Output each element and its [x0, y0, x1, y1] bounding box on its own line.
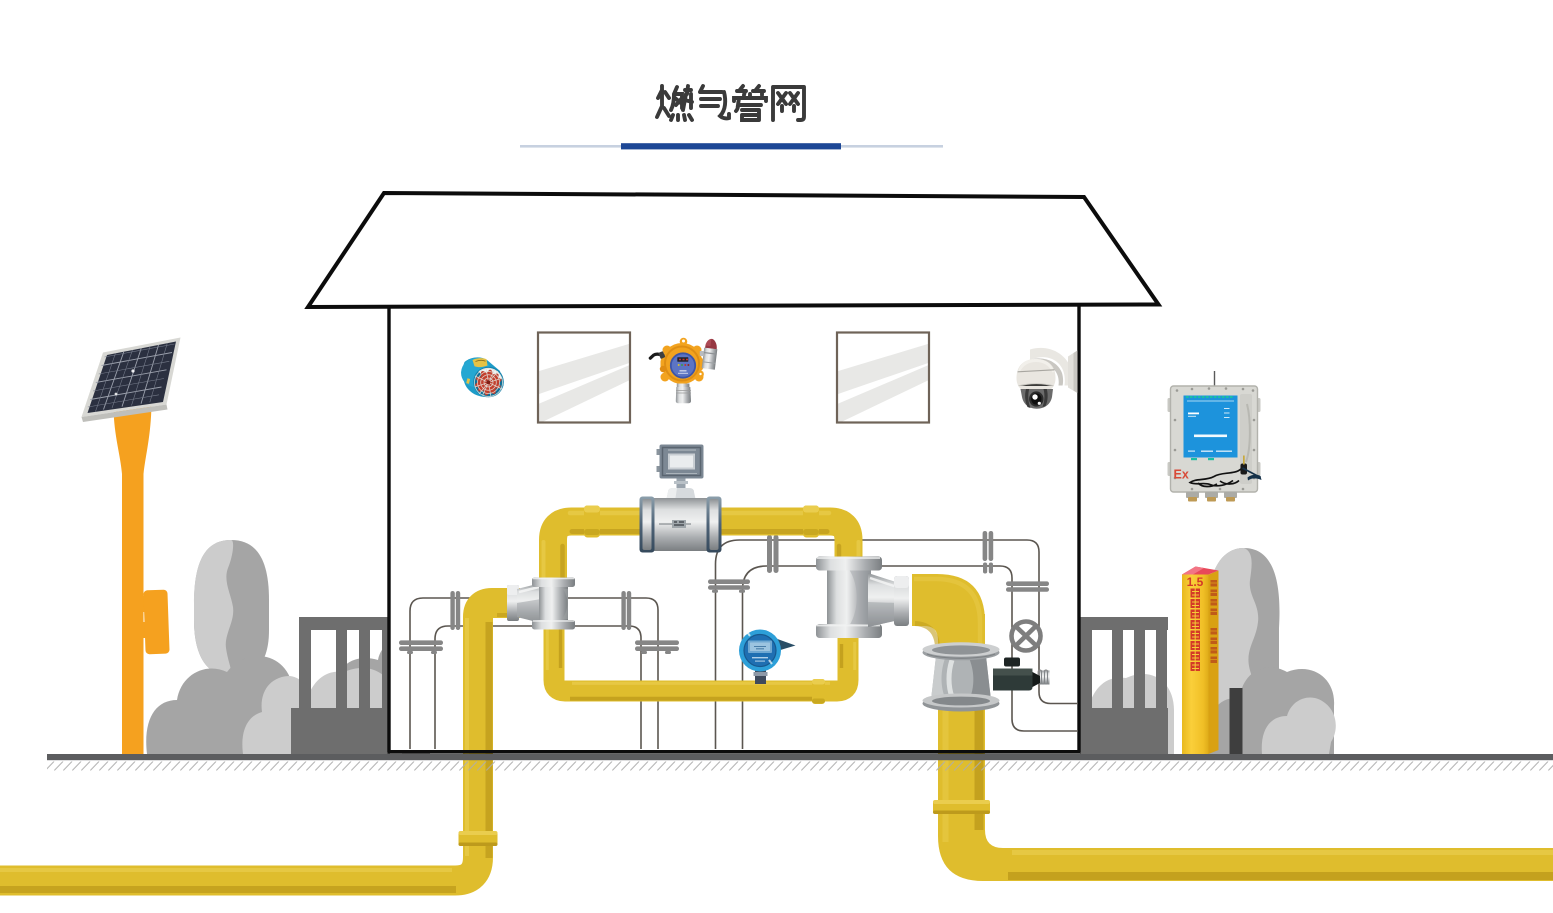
- svg-text:1.5: 1.5: [1187, 575, 1204, 589]
- svg-text:Ex: Ex: [1174, 468, 1189, 482]
